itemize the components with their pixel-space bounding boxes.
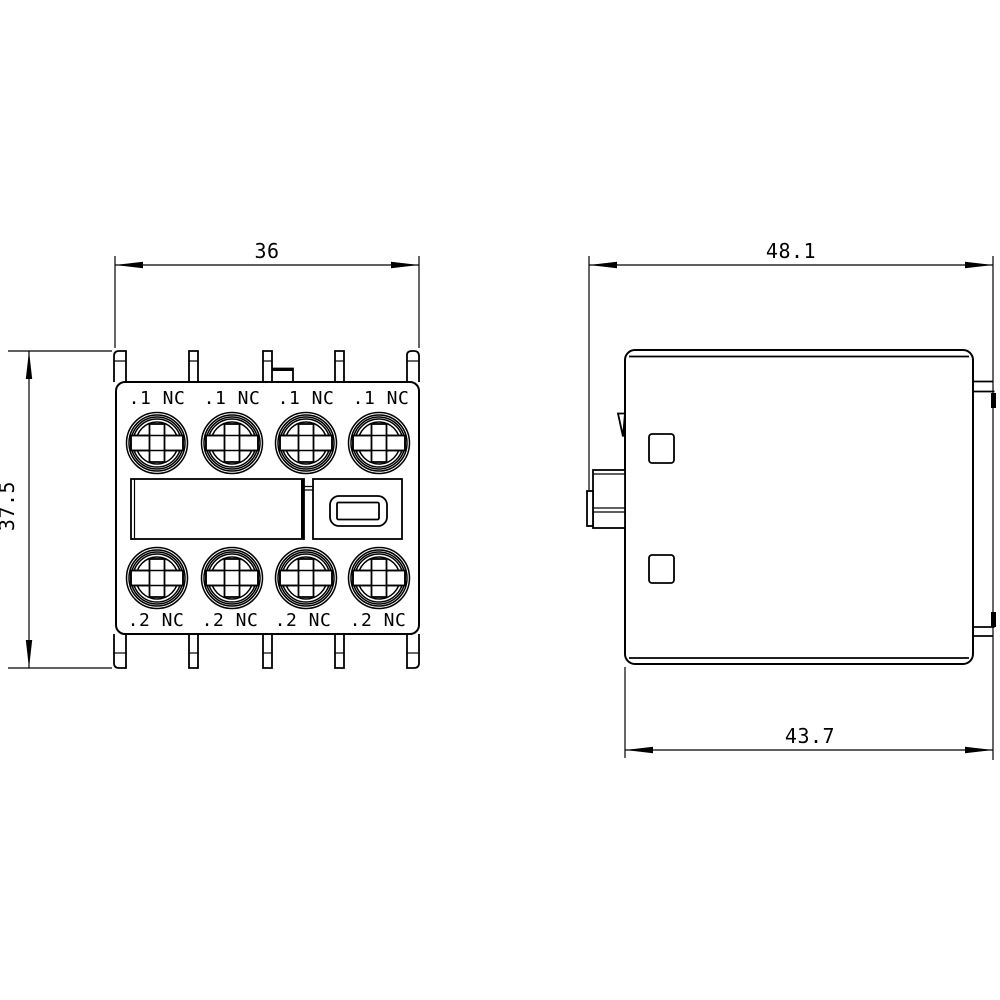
terminal-label: .1 NC: [129, 388, 186, 409]
arrowhead: [26, 640, 32, 668]
terminal-screw: [276, 548, 337, 609]
mounting-hole: [649, 434, 674, 463]
dimension-side-width-body: 43.7: [625, 667, 993, 758]
front-view: .1 NC .1 NC .1 NC .1 NC .2 NC .2 NC .2 N…: [0, 239, 419, 668]
terminal-label: .1 NC: [353, 388, 410, 409]
dim-label-side-body: 43.7: [785, 724, 835, 748]
terminal-label: .2 NC: [202, 610, 259, 631]
connector-block: [593, 470, 625, 528]
front-top-tabs: [114, 351, 419, 382]
dimension-front-height: 37.5: [0, 351, 112, 668]
mounting-tab: [114, 351, 126, 382]
plug-connector: [587, 470, 625, 528]
terminal-label: .2 NC: [128, 610, 185, 631]
mounting-tab: [335, 634, 344, 668]
latch-hook: [618, 414, 625, 437]
dim-label-side-overall: 48.1: [766, 239, 816, 263]
mounting-tab: [263, 634, 272, 668]
label-window: [131, 479, 304, 539]
arrowhead: [625, 747, 653, 753]
mounting-tab: [263, 351, 272, 382]
mounting-tab: [114, 634, 126, 668]
terminal-label: .1 NC: [204, 388, 261, 409]
terminal-label: .1 NC: [278, 388, 335, 409]
arrowhead: [115, 262, 143, 268]
front-bottom-tabs: [114, 634, 419, 668]
arrowhead: [965, 747, 993, 753]
side-view: 48.1 43.7: [587, 239, 996, 760]
terminal-screw: [127, 413, 188, 474]
dimension-front-width: 36: [115, 239, 419, 348]
mounting-tab: [335, 351, 344, 382]
arrowhead: [26, 351, 32, 379]
front-middle-windows: [131, 479, 402, 539]
terminal-label: .2 NC: [275, 610, 332, 631]
mounting-hole: [649, 555, 674, 583]
side-body: [625, 350, 973, 664]
marking-window-inner: [337, 503, 379, 520]
terminal-screw: [349, 548, 410, 609]
mounting-tab: [407, 634, 419, 668]
technical-drawing-page: .1 NC .1 NC .1 NC .1 NC .2 NC .2 NC .2 N…: [0, 0, 1000, 1000]
terminal-screw: [202, 413, 263, 474]
terminal-screw: [127, 548, 188, 609]
dim-label-front-height: 37.5: [0, 481, 19, 531]
arrowhead: [391, 262, 419, 268]
terminal-screw: [202, 548, 263, 609]
connector-blade: [587, 491, 593, 526]
mounting-tab: [189, 351, 198, 382]
mounting-tab: [407, 351, 419, 382]
dim-label-front-width: 36: [254, 239, 279, 263]
arrowhead: [589, 262, 617, 268]
terminal-screw: [349, 413, 410, 474]
arrowhead: [965, 262, 993, 268]
mounting-tab: [189, 634, 198, 668]
dimensional-drawing-canvas: .1 NC .1 NC .1 NC .1 NC .2 NC .2 NC .2 N…: [0, 0, 1000, 1000]
terminal-label: .2 NC: [350, 610, 407, 631]
terminal-screw: [276, 413, 337, 474]
